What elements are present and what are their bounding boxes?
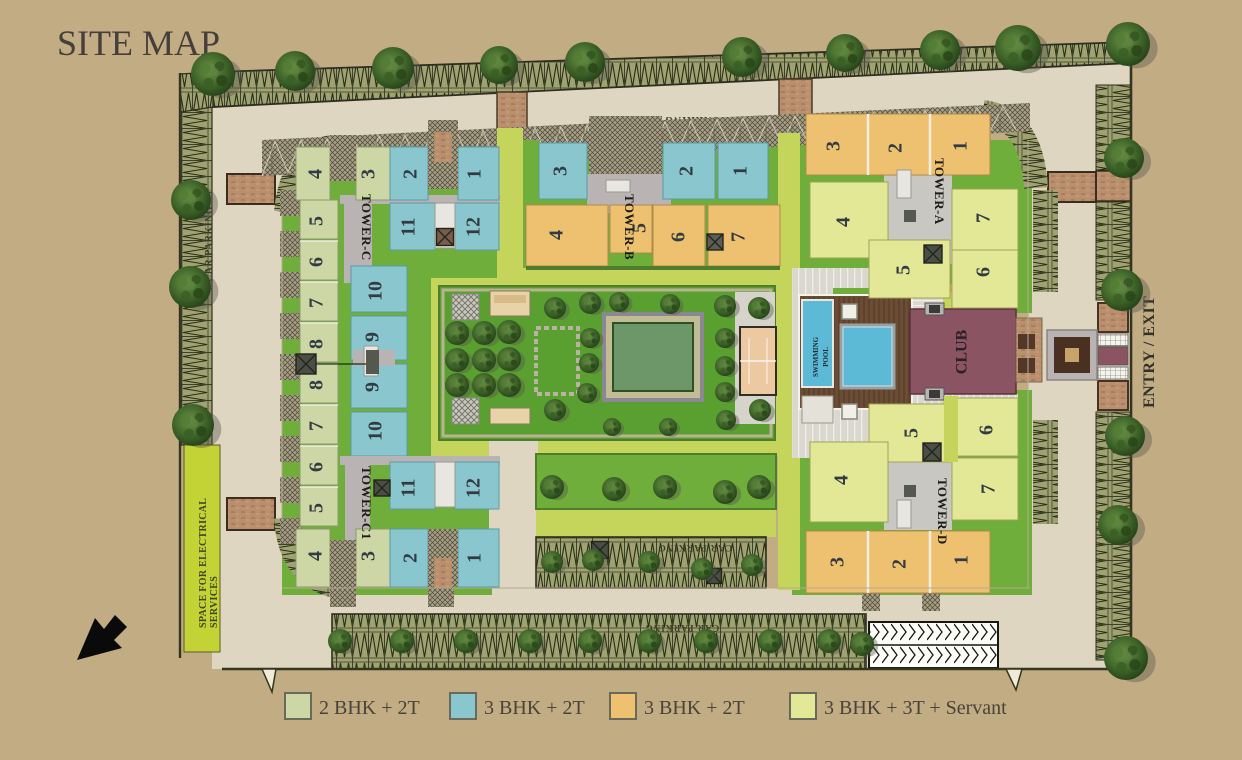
svg-text:SPACE FOR ELECTRICAL: SPACE FOR ELECTRICAL bbox=[198, 498, 209, 628]
svg-text:7: 7 bbox=[973, 213, 995, 223]
svg-text:10: 10 bbox=[365, 421, 387, 441]
svg-text:TOWER-C: TOWER-C bbox=[359, 194, 374, 261]
svg-text:1: 1 bbox=[951, 555, 973, 565]
svg-text:9: 9 bbox=[362, 382, 384, 392]
svg-text:2: 2 bbox=[676, 166, 698, 176]
svg-text:7: 7 bbox=[978, 484, 1000, 494]
svg-text:2: 2 bbox=[400, 169, 422, 179]
svg-text:POOL: POOL bbox=[822, 347, 830, 367]
svg-text:12: 12 bbox=[463, 478, 485, 498]
svg-text:4: 4 bbox=[305, 169, 327, 179]
svg-text:4: 4 bbox=[546, 230, 568, 240]
svg-text:TOWER-B: TOWER-B bbox=[622, 194, 637, 260]
svg-text:9: 9 bbox=[362, 332, 384, 342]
svg-text:5: 5 bbox=[306, 503, 328, 513]
svg-text:7: 7 bbox=[306, 421, 328, 431]
svg-text:6: 6 bbox=[306, 462, 328, 472]
svg-text:1: 1 bbox=[730, 166, 752, 176]
svg-text:6: 6 bbox=[306, 257, 328, 267]
svg-text:12: 12 bbox=[463, 217, 485, 237]
svg-text:3: 3 bbox=[550, 166, 572, 176]
svg-text:1: 1 bbox=[464, 553, 486, 563]
svg-text:2 BHK + 2T: 2 BHK + 2T bbox=[319, 697, 420, 719]
svg-text:11: 11 bbox=[398, 479, 420, 498]
svg-text:TOWER-A: TOWER-A bbox=[932, 158, 947, 225]
svg-text:3: 3 bbox=[358, 551, 380, 561]
svg-text:6: 6 bbox=[976, 425, 998, 435]
svg-text:CLUB: CLUB bbox=[954, 329, 971, 374]
svg-text:4: 4 bbox=[833, 217, 855, 227]
svg-text:5: 5 bbox=[893, 265, 915, 275]
svg-text:6: 6 bbox=[668, 232, 690, 242]
svg-text:ENTRY / EXIT: ENTRY / EXIT bbox=[1141, 296, 1158, 408]
svg-text:CAR PARKING: CAR PARKING bbox=[658, 543, 733, 553]
svg-text:3 BHK + 3T + Servant: 3 BHK + 3T + Servant bbox=[824, 697, 1007, 719]
svg-text:TOWER-C1: TOWER-C1 bbox=[359, 466, 374, 540]
svg-text:TOWER-D: TOWER-D bbox=[935, 478, 950, 545]
svg-text:8: 8 bbox=[306, 339, 328, 349]
svg-text:10: 10 bbox=[365, 281, 387, 301]
svg-text:3: 3 bbox=[823, 141, 845, 151]
svg-text:1: 1 bbox=[950, 141, 972, 151]
svg-text:6: 6 bbox=[973, 267, 995, 277]
svg-text:SWIMMING: SWIMMING bbox=[812, 336, 820, 377]
svg-text:4: 4 bbox=[305, 551, 327, 561]
svg-text:4: 4 bbox=[831, 475, 853, 485]
svg-text:7: 7 bbox=[728, 232, 750, 242]
svg-text:5: 5 bbox=[306, 216, 328, 226]
svg-text:3 BHK + 2T: 3 BHK + 2T bbox=[644, 697, 745, 719]
svg-text:3 BHK + 2T: 3 BHK + 2T bbox=[484, 697, 585, 719]
svg-text:SITE MAP: SITE MAP bbox=[57, 23, 220, 63]
svg-text:5: 5 bbox=[901, 428, 923, 438]
svg-text:2: 2 bbox=[400, 553, 422, 563]
svg-text:8: 8 bbox=[306, 380, 328, 390]
svg-text:2: 2 bbox=[885, 143, 907, 153]
svg-text:11: 11 bbox=[398, 218, 420, 237]
svg-text:1: 1 bbox=[464, 169, 486, 179]
svg-text:3: 3 bbox=[358, 169, 380, 179]
svg-text:3: 3 bbox=[827, 557, 849, 567]
svg-text:2: 2 bbox=[889, 559, 911, 569]
svg-text:7: 7 bbox=[306, 298, 328, 308]
svg-text:SERVICES: SERVICES bbox=[209, 576, 220, 628]
